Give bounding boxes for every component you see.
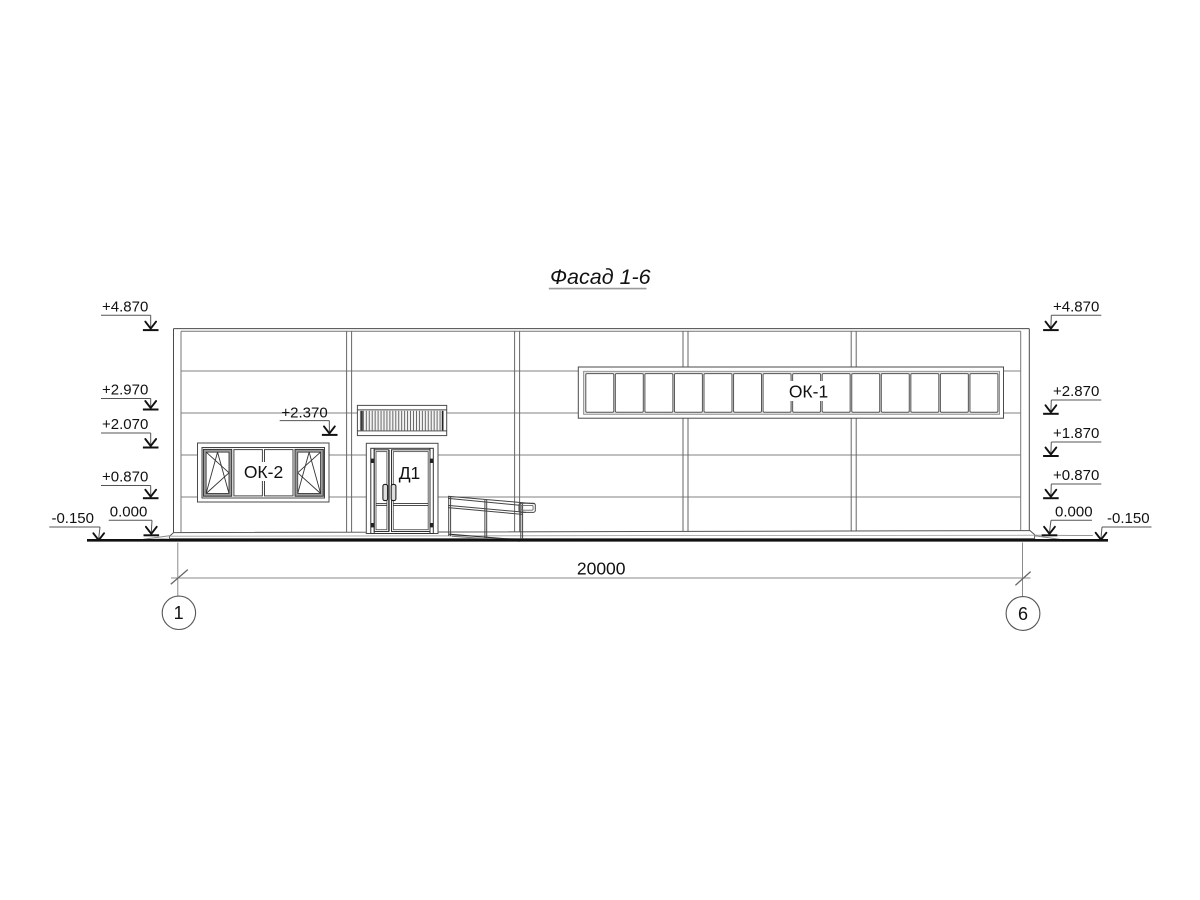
- svg-text:ОК-1: ОК-1: [789, 382, 828, 402]
- svg-text:+2.370: +2.370: [281, 404, 327, 421]
- svg-text:+4.870: +4.870: [1053, 298, 1099, 315]
- svg-text:+2.970: +2.970: [102, 382, 148, 399]
- svg-text:Д1: Д1: [399, 463, 421, 483]
- svg-text:+4.870: +4.870: [102, 298, 148, 315]
- svg-text:ОК-2: ОК-2: [244, 462, 283, 482]
- svg-text:+1.870: +1.870: [1053, 425, 1099, 442]
- svg-text:+0.870: +0.870: [102, 469, 148, 486]
- svg-text:-0.150: -0.150: [1107, 510, 1150, 527]
- svg-text:0.000: 0.000: [110, 503, 148, 520]
- svg-text:+2.070: +2.070: [102, 416, 148, 433]
- svg-text:6: 6: [1018, 604, 1028, 624]
- svg-text:-0.150: -0.150: [51, 510, 94, 527]
- svg-text:+0.870: +0.870: [1053, 467, 1099, 484]
- svg-text:1: 1: [174, 603, 184, 623]
- svg-text:0.000: 0.000: [1055, 503, 1093, 520]
- svg-text:20000: 20000: [577, 559, 626, 579]
- svg-text:+2.870: +2.870: [1053, 383, 1099, 400]
- svg-text:Фасад 1-6: Фасад 1-6: [550, 265, 651, 289]
